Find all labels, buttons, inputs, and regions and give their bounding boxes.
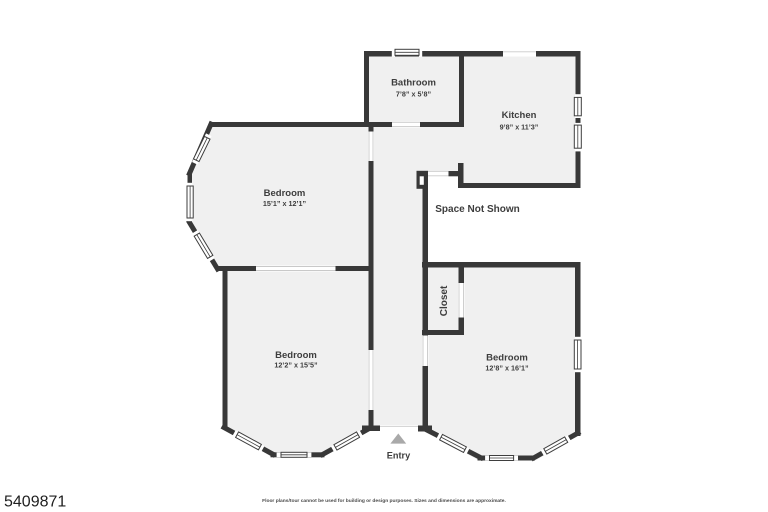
svg-text:12’2” x 15’5”: 12’2” x 15’5” bbox=[274, 360, 318, 369]
svg-text:Bedroom: Bedroom bbox=[486, 353, 528, 364]
svg-text:Space Not Shown: Space Not Shown bbox=[435, 204, 519, 215]
svg-text:Kitchen: Kitchen bbox=[502, 110, 537, 121]
svg-text:5409871: 5409871 bbox=[4, 494, 66, 511]
svg-text:Closet: Closet bbox=[439, 285, 450, 316]
svg-text:12’8” x 16’1”: 12’8” x 16’1” bbox=[485, 363, 529, 372]
svg-text:15’1” x 12’1”: 15’1” x 12’1” bbox=[263, 199, 307, 208]
svg-text:Entry: Entry bbox=[387, 451, 411, 461]
svg-text:Floor plans/tour cannot be use: Floor plans/tour cannot be used for buil… bbox=[262, 498, 506, 504]
svg-text:Bedroom: Bedroom bbox=[264, 188, 306, 199]
svg-text:7’8” x 5’8”: 7’8” x 5’8” bbox=[396, 90, 432, 99]
svg-text:9’8” x 11’3”: 9’8” x 11’3” bbox=[500, 123, 539, 132]
svg-text:Bathroom: Bathroom bbox=[391, 78, 436, 89]
